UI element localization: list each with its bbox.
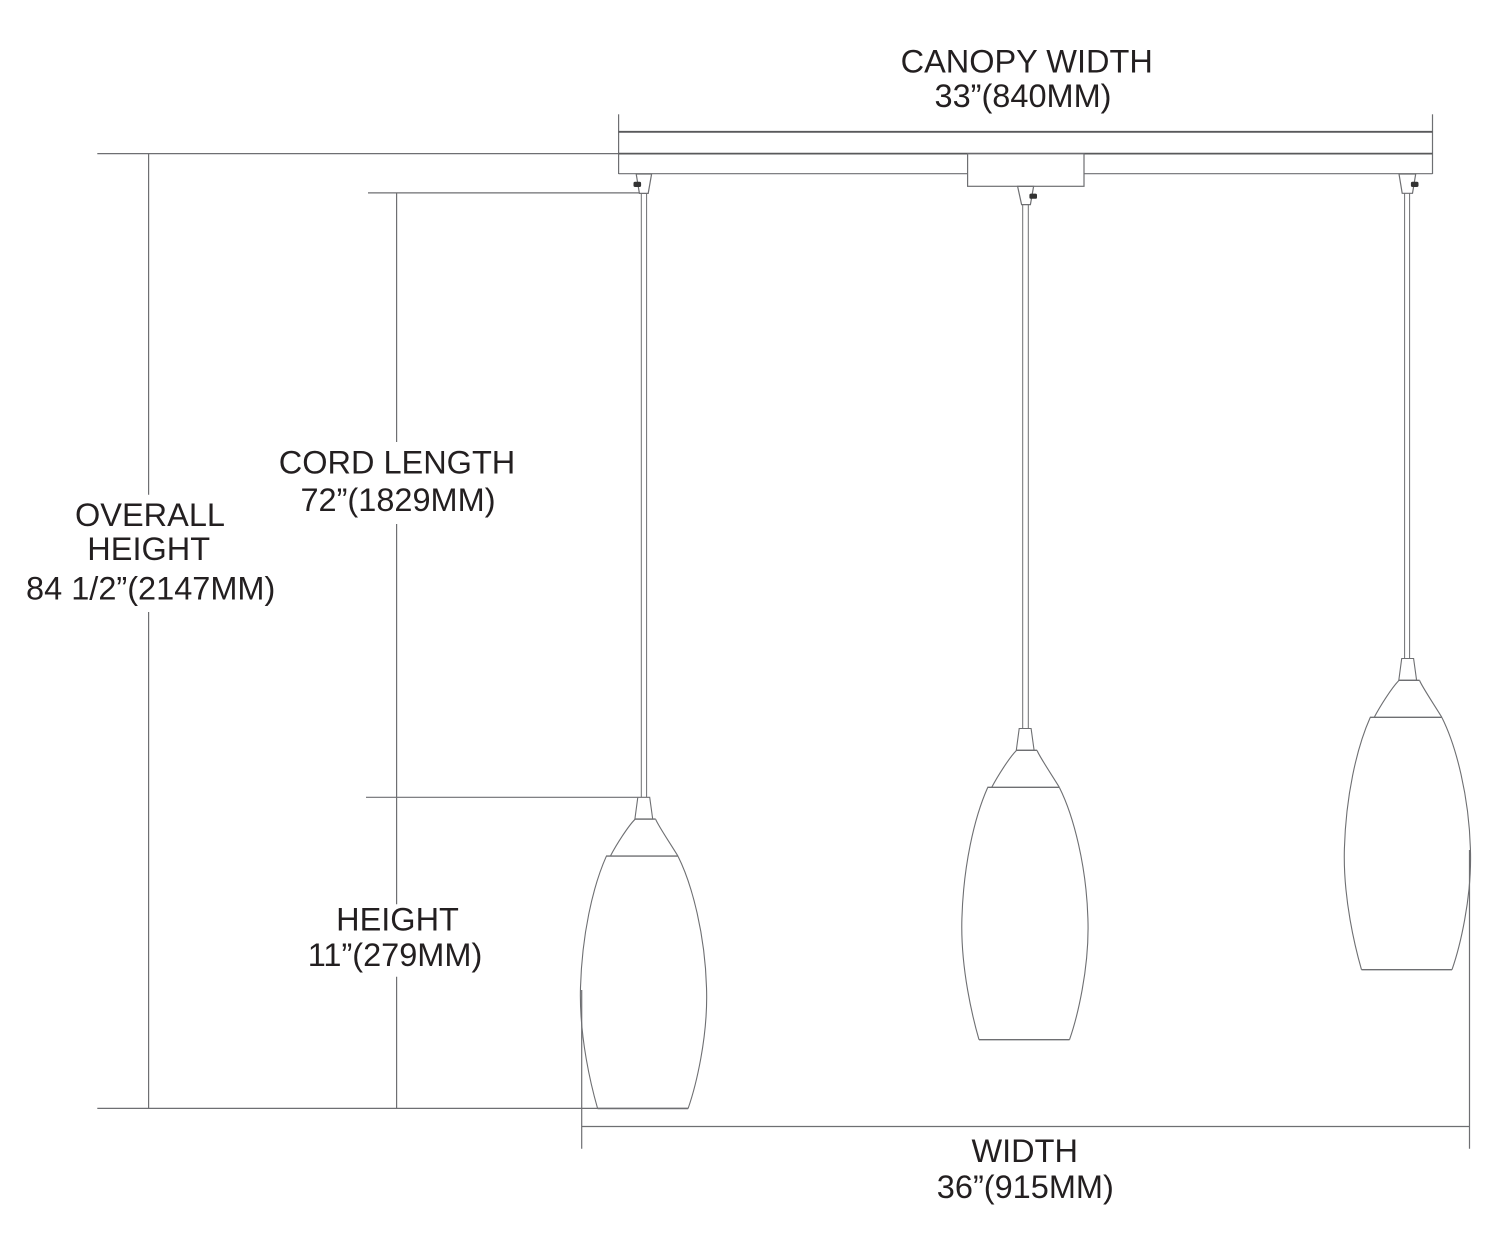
svg-text:WIDTH: WIDTH	[971, 1133, 1078, 1169]
svg-text:OVERALL: OVERALL	[75, 497, 225, 533]
svg-text:84 1/2”(2147MM): 84 1/2”(2147MM)	[26, 570, 275, 606]
svg-text:HEIGHT: HEIGHT	[336, 902, 459, 938]
svg-text:CORD LENGTH: CORD LENGTH	[279, 444, 516, 480]
svg-text:72”(1829MM): 72”(1829MM)	[300, 482, 495, 518]
svg-text:CANOPY WIDTH: CANOPY WIDTH	[901, 43, 1153, 79]
svg-text:HEIGHT: HEIGHT	[87, 531, 210, 567]
svg-text:33”(840MM): 33”(840MM)	[935, 78, 1112, 114]
svg-text:11”(279MM): 11”(279MM)	[308, 937, 483, 973]
svg-text:36”(915MM): 36”(915MM)	[937, 1169, 1114, 1205]
